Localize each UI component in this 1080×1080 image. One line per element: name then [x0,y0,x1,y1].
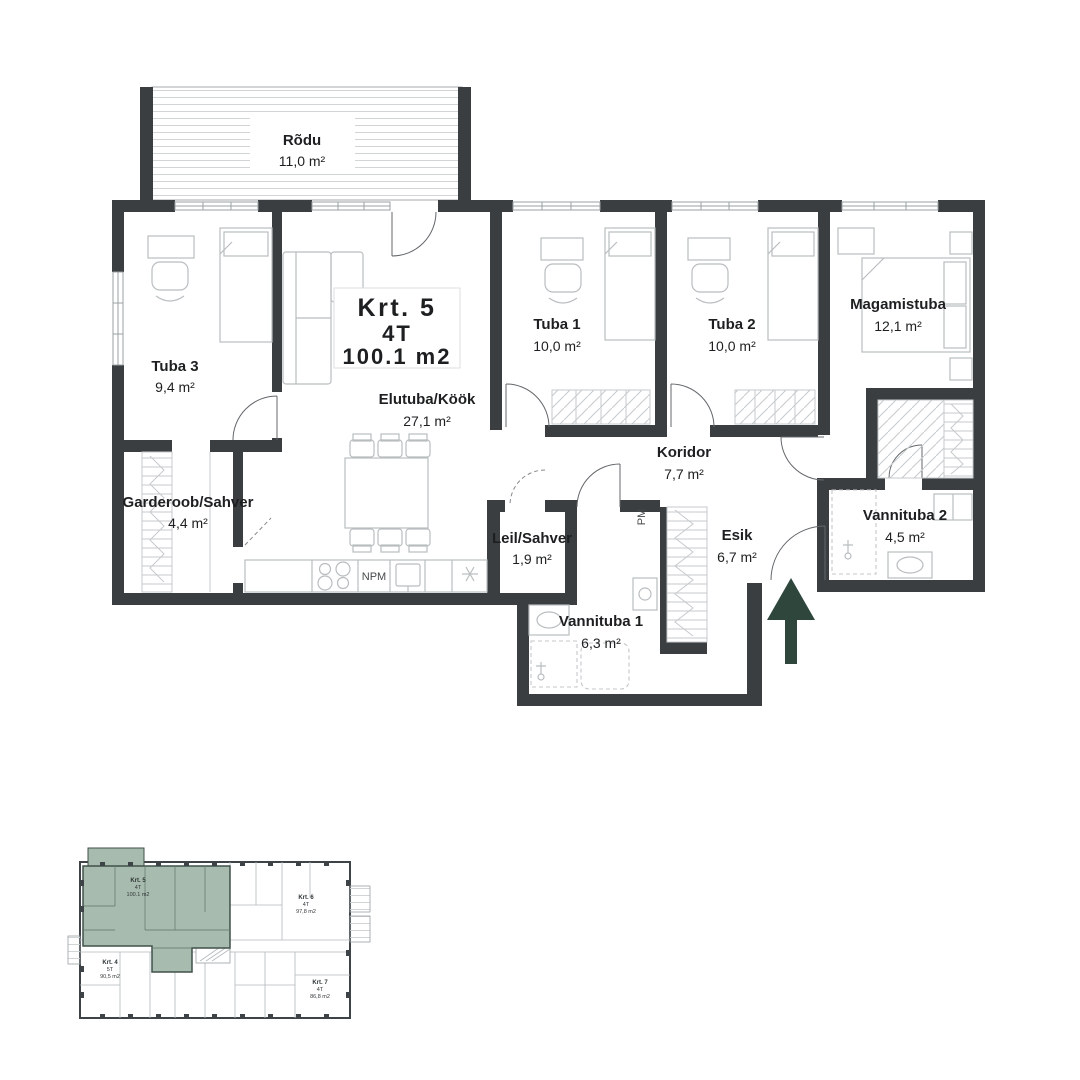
room-area-vannituba1: 6,3 m² [581,635,621,651]
tuba3-bed [220,228,272,342]
room-area-tuba3: 9,4 m² [155,379,195,395]
floor-plan-page: Krt. 5 4T 100.1 m2 Rõdu 11,0 m² Tuba 3 9… [0,0,1080,1080]
fridge-star-icon [462,567,478,581]
title-block: Krt. 5 4T 100.1 m2 [334,288,460,369]
nightstand [950,358,972,380]
room-area-leil: 1,9 m² [512,551,552,567]
balcony-wall-right [458,87,471,200]
tuba3-chair [152,262,188,301]
room-name-tuba1: Tuba 1 [533,316,580,333]
dining-table [345,458,428,528]
minimap-krt4-label: Krt. 4 [102,960,118,966]
apartment-area: 100.1 m2 [343,344,452,369]
apartment-type: 4T [382,321,412,346]
tuba3-door [233,396,277,440]
tuba1-bed [605,228,655,340]
room-name-vannituba2: Vannituba 2 [863,507,947,524]
stove-burner [318,576,332,590]
tuba2-door [671,384,714,427]
dishwasher-marker: NPM [362,571,386,583]
tuba2-desk [688,238,730,260]
window-balcony-right [312,202,390,210]
stove-burner [336,562,350,576]
magamistuba-door [781,437,824,480]
stove-burner [338,578,349,589]
room-area-garderoob: 4,4 m² [168,515,208,531]
minimap-krt6-label: Krt. 6 [298,895,314,901]
tuba3-desk [148,236,194,258]
tuba2-chair [692,264,728,303]
minimap-krt6-type: 4T [303,902,310,908]
room-name-garderoob: Garderoob/Sahver [123,494,254,511]
tuba2-wardrobe [735,390,815,424]
tuba1-chair [545,264,581,303]
stove-burner [320,564,331,575]
minimap-krt4-area: 90,5 m2 [100,974,120,980]
minimap-krt5-type: 4T [135,885,142,891]
shower [531,641,577,687]
dresser [838,228,874,254]
tuba1-desk [541,238,583,260]
entry-door [771,526,825,580]
room-name-tuba3: Tuba 3 [151,358,198,375]
garderoob-door-swing [245,518,271,545]
dining-chairs [350,434,430,552]
room-name-esik: Esik [722,527,754,544]
tuba2-bed [768,228,818,340]
room-name-koridor: Koridor [657,444,711,461]
pm-corridor-door [577,464,620,507]
room-area-esik: 6,7 m² [717,549,757,565]
room-name-rodu: Rõdu [283,132,321,149]
apartment-title: Krt. 5 [358,294,437,322]
room-name-elutuba: Elutuba/Köök [379,391,476,408]
window-tuba3 [113,272,123,365]
room-area-koridor: 7,7 m² [664,466,704,482]
window-balcony-left [175,202,258,210]
room-area-vannituba2: 4,5 m² [885,529,925,545]
nightstand [950,232,972,254]
balcony-wall-left [140,87,153,200]
building-minimap: Krt. 5 4T 100.1 m2 Krt. 6 4T 97,8 m2 Krt… [68,848,370,1018]
room-area-tuba2: 10,0 m² [708,338,756,354]
minimap-krt5-area: 100.1 m2 [127,892,150,898]
window-tuba2 [672,202,758,210]
minimap-krt7-area: 86,8 m2 [310,994,330,1000]
minimap-krt4-type: 5T [107,967,114,973]
floor-plan-canvas: Krt. 5 4T 100.1 m2 Rõdu 11,0 m² Tuba 3 9… [0,0,1080,1080]
room-name-vannituba1: Vannituba 1 [559,613,643,630]
esik-wardrobe [667,507,707,642]
room-name-tuba2: Tuba 2 [708,316,755,333]
washing-machine [633,578,657,610]
room-name-magamistuba: Magamistuba [850,296,947,313]
kitchen-sink [396,564,420,592]
balcony-door [392,212,436,256]
room-area-elutuba: 27,1 m² [403,413,451,429]
minimap-krt5-label: Krt. 5 [130,878,146,884]
room-area-magamistuba: 12,1 m² [874,318,922,334]
leil-door-swing [510,470,545,505]
washing-machine-marker: PM [636,509,648,526]
window-magamistuba [842,202,938,210]
entrance-arrow [767,578,815,664]
magamistuba-closet [878,400,973,478]
tuba1-door [506,384,549,427]
room-area-rodu: 11,0 m² [279,153,326,169]
minimap-krt7-type: 4T [317,987,324,993]
room-name-leil: Leil/Sahver [492,530,572,547]
tuba1-wardrobe [552,390,650,424]
bathroom-sink [888,552,932,578]
shower [832,490,876,574]
room-area-tuba1: 10,0 m² [533,338,581,354]
minimap-krt7-label: Krt. 7 [312,980,328,986]
minimap-krt6-area: 97,8 m2 [296,909,316,915]
window-tuba1 [513,202,600,210]
